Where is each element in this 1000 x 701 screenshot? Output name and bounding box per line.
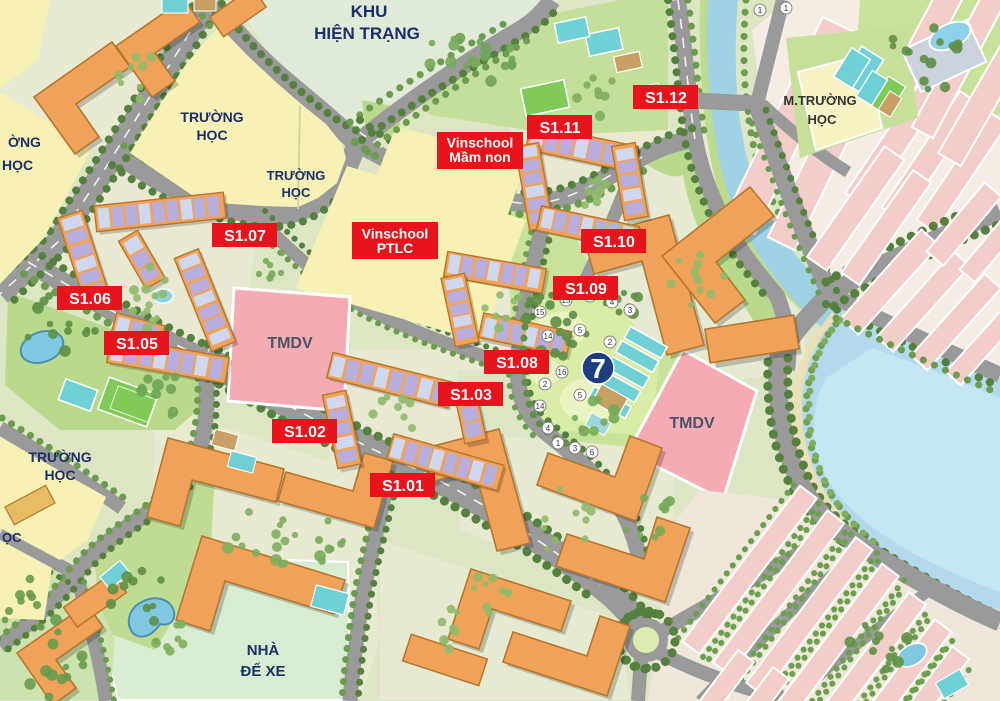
- svg-text:NHÀ: NHÀ: [247, 642, 280, 659]
- svg-text:16: 16: [558, 368, 567, 377]
- svg-text:S1.02: S1.02: [284, 424, 326, 441]
- svg-text:3: 3: [573, 444, 578, 453]
- svg-text:TRƯỜNG: TRƯỜNG: [28, 448, 91, 465]
- svg-text:HỌC: HỌC: [44, 467, 75, 483]
- svg-text:ỜNG: ỜNG: [8, 133, 41, 150]
- svg-text:M.TRƯỜNG: M.TRƯỜNG: [783, 93, 856, 108]
- svg-text:ĐỂ XE: ĐỂ XE: [240, 662, 285, 680]
- svg-text:2: 2: [608, 338, 613, 347]
- svg-text:HỌC: HỌC: [282, 185, 312, 200]
- svg-text:S1.10: S1.10: [593, 234, 635, 251]
- svg-text:1: 1: [784, 4, 789, 13]
- svg-text:5: 5: [578, 391, 583, 400]
- svg-text:TRƯỜNG: TRƯỜNG: [180, 108, 243, 125]
- svg-text:15: 15: [536, 308, 545, 317]
- svg-text:2: 2: [543, 380, 548, 389]
- svg-text:4: 4: [546, 424, 551, 433]
- svg-text:S1.12: S1.12: [645, 90, 687, 107]
- svg-text:S1.09: S1.09: [565, 281, 607, 298]
- svg-text:HỌC: HỌC: [2, 157, 33, 173]
- svg-text:S1.07: S1.07: [224, 228, 266, 245]
- svg-text:PTLC: PTLC: [377, 240, 414, 256]
- svg-text:S1.08: S1.08: [496, 355, 538, 372]
- svg-text:5: 5: [578, 326, 583, 335]
- svg-text:S1.03: S1.03: [450, 387, 492, 404]
- svg-text:1: 1: [758, 6, 763, 15]
- svg-text:S1.01: S1.01: [382, 478, 424, 495]
- svg-text:Mầm non: Mầm non: [449, 149, 510, 165]
- svg-text:3: 3: [628, 306, 633, 315]
- svg-text:S1.06: S1.06: [69, 291, 111, 308]
- svg-text:TRƯỜNG: TRƯỜNG: [267, 168, 326, 183]
- svg-text:S1.05: S1.05: [116, 336, 158, 353]
- svg-text:14: 14: [536, 402, 545, 411]
- svg-text:HỌC: HỌC: [196, 127, 227, 143]
- svg-text:1: 1: [556, 439, 561, 448]
- svg-text:TMDV: TMDV: [267, 335, 313, 352]
- svg-text:7: 7: [590, 353, 606, 384]
- svg-text:14: 14: [544, 332, 553, 341]
- svg-text:ỌC: ỌC: [2, 530, 22, 545]
- svg-text:S1.11: S1.11: [540, 120, 581, 137]
- svg-text:6: 6: [590, 448, 595, 457]
- svg-text:HỌC: HỌC: [808, 112, 838, 127]
- svg-text:TMDV: TMDV: [669, 415, 715, 432]
- svg-text:HIỆN TRẠNG: HIỆN TRẠNG: [314, 24, 420, 43]
- svg-text:KHU: KHU: [351, 2, 388, 21]
